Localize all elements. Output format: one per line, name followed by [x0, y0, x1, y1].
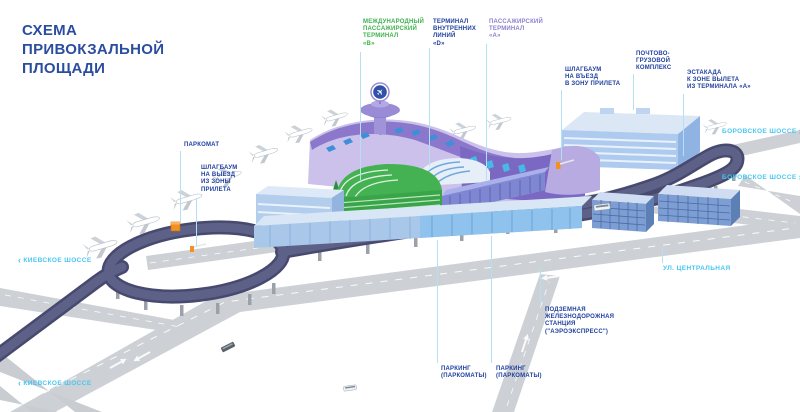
leader-barrier-entry [561, 90, 562, 160]
chevron-right-icon: › [797, 126, 800, 136]
carpark-building-1 [592, 192, 654, 232]
leader-parkomat [180, 151, 181, 222]
leader-terminal-a [486, 44, 487, 180]
bus-icon [343, 385, 356, 392]
carpark-building-2 [658, 185, 740, 226]
airplane-icon [485, 110, 513, 132]
airplane-icon [248, 140, 281, 166]
dark-bus-icon [221, 342, 236, 353]
airport-square-scheme: ✈ [0, 0, 800, 412]
label-overpass: ЭСТАКАДА К ЗОНЕ ВЫЛЕТА ИЗ ТЕРМИНАЛА «А» [687, 70, 751, 92]
label-terminal-a: ПАССАЖИРСКИЙ ТЕРМИНАЛ «А» [489, 19, 543, 41]
label-barrier-exit: ШЛАГБАУМ НА ВЫЕЗД ИЗ ЗОНЫ ПРИЛЕТА [201, 165, 238, 194]
label-parkomat: ПАРКОМАТ [184, 142, 219, 149]
airplane-icon [169, 185, 205, 213]
label-barrier-entry: ШЛАГБАУМ НА ВЪЕЗД В ЗОНУ ПРИЛЕТА [565, 67, 620, 89]
chevron-right-icon: › [797, 172, 800, 182]
leader-parking-2 [491, 236, 492, 363]
label-parking-1: ПАРКИНГ (ПАРКОМАТЫ) [441, 366, 487, 380]
road-label-borovskoe-1: БОРОВСКОЕ ШОССЕ› [722, 128, 800, 135]
label-terminal-b: МЕЖДУНАРОДНЫЙ ПАССАЖИРСКИЙ ТЕРМИНАЛ «B» [363, 19, 424, 48]
label-terminal-d: ТЕРМИНАЛ ВНУТРЕННИХ ЛИНИЙ «D» [433, 19, 476, 48]
leader-parking-1 [437, 240, 438, 363]
leader-terminal-d [429, 48, 430, 166]
label-parking-2: ПАРКИНГ (ПАРКОМАТЫ) [496, 366, 542, 380]
page-title: СХЕМА ПРИВОКЗАЛЬНОЙ ПЛОЩАДИ [22, 22, 164, 78]
leader-cargo [633, 74, 634, 110]
parkomat-box [171, 222, 180, 231]
leader-overpass [683, 94, 684, 156]
leader-terminal-b [360, 52, 361, 180]
leader-barrier-exit [196, 198, 197, 246]
label-cargo-complex: ПОЧТОВО- ГРУЗОВОЙ КОМПЛЕКС [636, 51, 671, 73]
road-label-borovskoe-2: БОРОВСКОЕ ШОССЕ› [722, 174, 800, 181]
leader-central-street [662, 247, 663, 263]
airplane-icon [283, 121, 314, 146]
label-rail-station: ПОДЗЕМНАЯ ЖЕЛЕЗНОДОРОЖНАЯ СТАНЦИЯ ("АЭРО… [545, 307, 614, 336]
road-label-kievskoe-2: ‹КИЕВСКОЕ ШОССЕ [16, 380, 92, 387]
road-label-kievskoe-1: ‹КИЕВСКОЕ ШОССЕ [16, 257, 92, 264]
leader-rail-station [540, 268, 541, 306]
road-label-central-street: УЛ. ЦЕНТРАЛЬНАЯ [663, 265, 731, 272]
